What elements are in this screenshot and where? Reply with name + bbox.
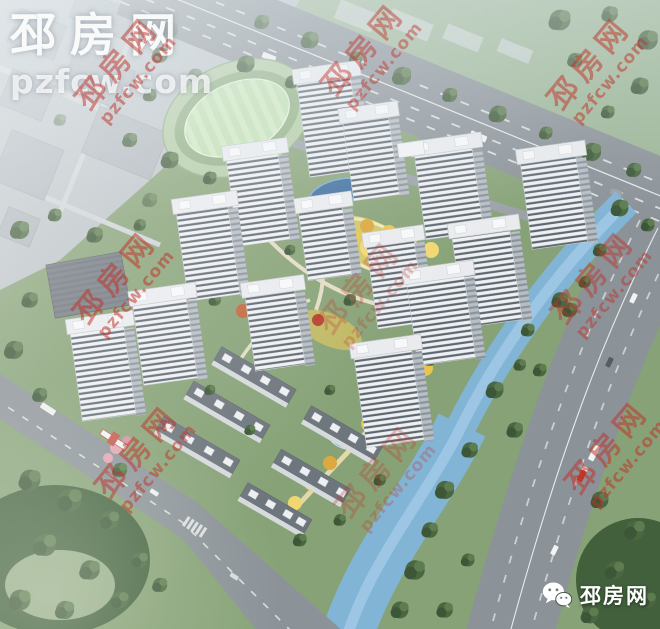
wechat-icon <box>541 581 573 609</box>
wechat-badge: 邳房网 <box>541 580 649 610</box>
aerial-rendering: 邳房网 pzfcw.com 邳房网pzfcw.com 邳房网pzfcw.com … <box>0 0 660 629</box>
haze-overlay <box>0 0 660 629</box>
rendered-landscape <box>0 0 660 629</box>
badge-label: 邳房网 <box>580 580 649 610</box>
